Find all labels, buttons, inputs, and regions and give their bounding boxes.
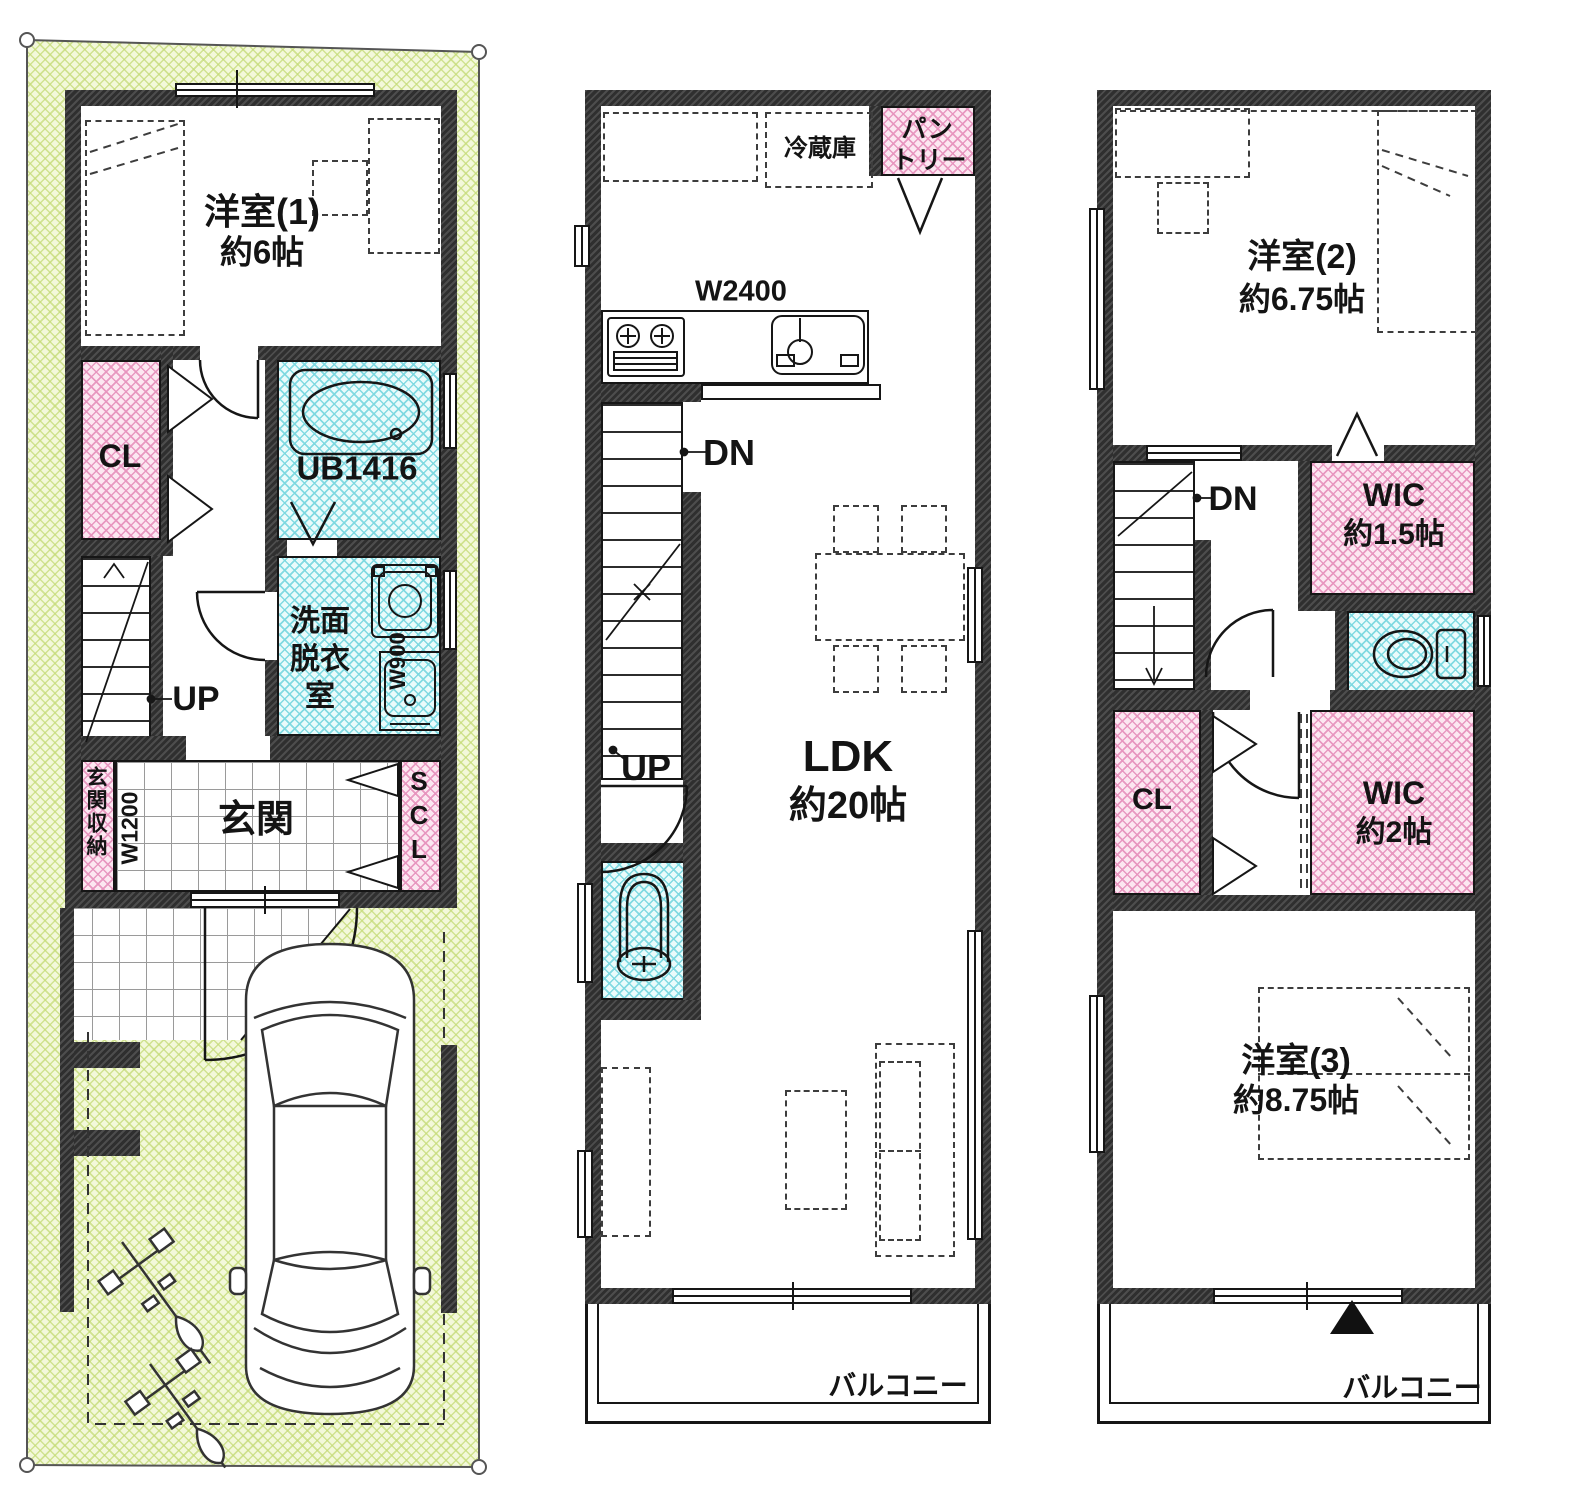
f1-closet-label: CL xyxy=(99,440,142,472)
f2-staircase xyxy=(601,402,683,780)
f3-wall-wic1-left xyxy=(1298,461,1310,595)
f3-window-room2 xyxy=(1089,208,1105,390)
f3-balcony-label: バルコニー xyxy=(1342,1374,1481,1402)
f2-wall-stairs-side xyxy=(683,492,701,780)
f1-desk xyxy=(368,118,440,254)
f1-washroom-label-3: 室 xyxy=(305,682,335,712)
f3-desk xyxy=(1115,108,1250,178)
f3-wic1-size-label: 約1.5帖 xyxy=(1343,520,1445,550)
f1-entrance-storage-label: 玄関収納 xyxy=(85,766,106,890)
f2-window-left-top xyxy=(574,225,590,267)
f3-wall-closet-right xyxy=(1201,710,1213,895)
f2-wall-toilet-right xyxy=(683,780,701,1020)
f3-wic2-sliding-opening xyxy=(1298,710,1310,895)
f3-wic2-label: WIC xyxy=(1363,777,1425,809)
f2-dining-chair-2 xyxy=(901,505,947,553)
f3-hall-door-opening xyxy=(1250,690,1330,710)
f1-bed xyxy=(85,120,185,336)
f3-wic2-size-label: 約2帖 xyxy=(1356,818,1433,848)
f2-dn-label: DN xyxy=(703,435,755,471)
f1-hall-floor xyxy=(173,360,265,556)
f3-room3-size-label: 約8.75帖 xyxy=(1233,1084,1359,1116)
f1-entrance-width-label: W1200 xyxy=(119,792,142,865)
f1-garage-wall-stub2 xyxy=(74,1130,140,1156)
f2-kitchen-cabinet xyxy=(603,112,758,182)
f2-dining-chair-1 xyxy=(833,505,879,553)
f2-wall-kitchen-stub xyxy=(601,384,701,402)
f2-wall-toilet-top xyxy=(601,843,687,861)
floorplan-canvas: 洋室(1) 約6帖 CL UB1416 洗面 脱衣 室 W900 UP 玄関 玄… xyxy=(0,0,1570,1506)
f2-dining-table xyxy=(815,553,965,641)
f2-ldk-label: LDK xyxy=(803,735,893,779)
f2-tv-board xyxy=(601,1067,651,1237)
f3-window-room3 xyxy=(1089,995,1105,1153)
f3-chair xyxy=(1157,182,1209,234)
f1-wall-cl-right xyxy=(161,346,173,556)
f3-toilet-room xyxy=(1347,611,1475,695)
f1-entrance-label: 玄関 xyxy=(218,801,294,839)
f1-window-top xyxy=(175,83,375,97)
f2-coffee-table xyxy=(785,1090,847,1210)
f3-closet-label: CL xyxy=(1132,785,1172,815)
f2-sofa-cushion-divider xyxy=(879,1150,921,1152)
f2-wall-toilet-bottom xyxy=(601,1000,701,1020)
f1-window-bath xyxy=(443,373,457,449)
f1-wall-ub-left xyxy=(265,346,277,556)
f3-staircase xyxy=(1113,461,1195,690)
f1-room1-door-opening xyxy=(200,346,258,360)
f3-wall-room3-top xyxy=(1113,895,1475,911)
f1-genkan-opening xyxy=(186,736,270,760)
f1-washroom-door-opening xyxy=(265,592,277,660)
f1-up-label: UP xyxy=(172,682,219,716)
f2-pantry-label-2: トリー xyxy=(891,149,966,174)
f3-dn-label: DN xyxy=(1208,482,1257,516)
f2-kitchen-width-label: W2400 xyxy=(695,278,787,307)
f2-window-toilet xyxy=(577,883,593,983)
f1-washroom-label-1: 洗面 xyxy=(290,607,350,637)
f2-ldk-size-label: 約20帖 xyxy=(789,787,907,825)
f2-window-left-bottom xyxy=(577,1150,593,1238)
f3-room3-label: 洋室(3) xyxy=(1241,1044,1351,1078)
f1-ub-door-opening xyxy=(287,540,337,556)
f2-dining-chair-3 xyxy=(833,645,879,693)
f1-entrance-door-sill xyxy=(190,892,340,908)
f1-bath-width-label: W900 xyxy=(387,632,409,689)
f2-up-label: UP xyxy=(621,750,671,786)
f2-balcony-label: バルコニー xyxy=(828,1372,967,1400)
f1-garage-wall-stub1 xyxy=(74,1042,140,1068)
f3-wall-toilet-left xyxy=(1335,611,1347,695)
f2-kitchen-counter xyxy=(601,310,869,384)
f1-washroom-label-2: 脱衣 xyxy=(290,645,350,675)
f2-window-right-dining xyxy=(967,567,983,663)
f3-room2-label: 洋室(2) xyxy=(1247,240,1357,274)
f3-wall-stairs-side xyxy=(1195,540,1211,690)
f2-balcony-door xyxy=(672,1288,912,1304)
f3-wall-wic1-bottom xyxy=(1298,595,1475,611)
f3-window-toilet xyxy=(1477,615,1491,687)
f1-room1-size-label: 約6帖 xyxy=(220,236,304,269)
f3-room2-size-label: 約6.75帖 xyxy=(1239,283,1365,315)
f1-chair xyxy=(312,160,368,216)
f2-dining-chair-4 xyxy=(901,645,947,693)
f3-room2-sliding-door xyxy=(1146,445,1242,461)
f1-garage-wall-left xyxy=(60,908,74,1312)
f3-wic1-door-opening xyxy=(1332,445,1384,461)
f1-wall-stairs-top xyxy=(81,540,161,556)
f3-balcony-door xyxy=(1213,1288,1403,1304)
f3-wic1-label: WIC xyxy=(1363,479,1425,511)
f1-wall-stairs-side xyxy=(151,556,163,660)
f1-garage-wall-right xyxy=(441,1045,457,1313)
f3-bed-single xyxy=(1377,110,1477,333)
f1-room1-label: 洋室(1) xyxy=(204,194,320,230)
f1-bath-label: UB1416 xyxy=(296,452,417,485)
f2-refrigerator-label: 冷蔵庫 xyxy=(784,137,856,161)
f2-pantry-label-1: パン xyxy=(901,118,952,143)
f2-window-right-living xyxy=(967,930,983,1240)
f1-shoe-closet-label: SCL xyxy=(406,766,432,888)
f1-window-washroom xyxy=(443,570,457,650)
f1-wall-room1-bottom xyxy=(81,346,441,360)
f2-toilet-room xyxy=(601,861,687,1000)
f2-counter-edge xyxy=(701,384,881,400)
f1-staircase xyxy=(81,556,151,747)
